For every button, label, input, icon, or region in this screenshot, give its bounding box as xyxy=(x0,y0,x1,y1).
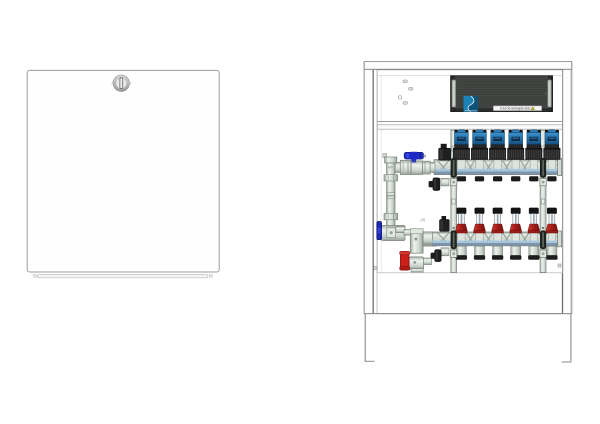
svg-text:(8): (8) xyxy=(421,218,425,222)
svg-text:In den Öko-sammagüten stöder: In den Öko-sammagüten stöder xyxy=(500,107,531,111)
